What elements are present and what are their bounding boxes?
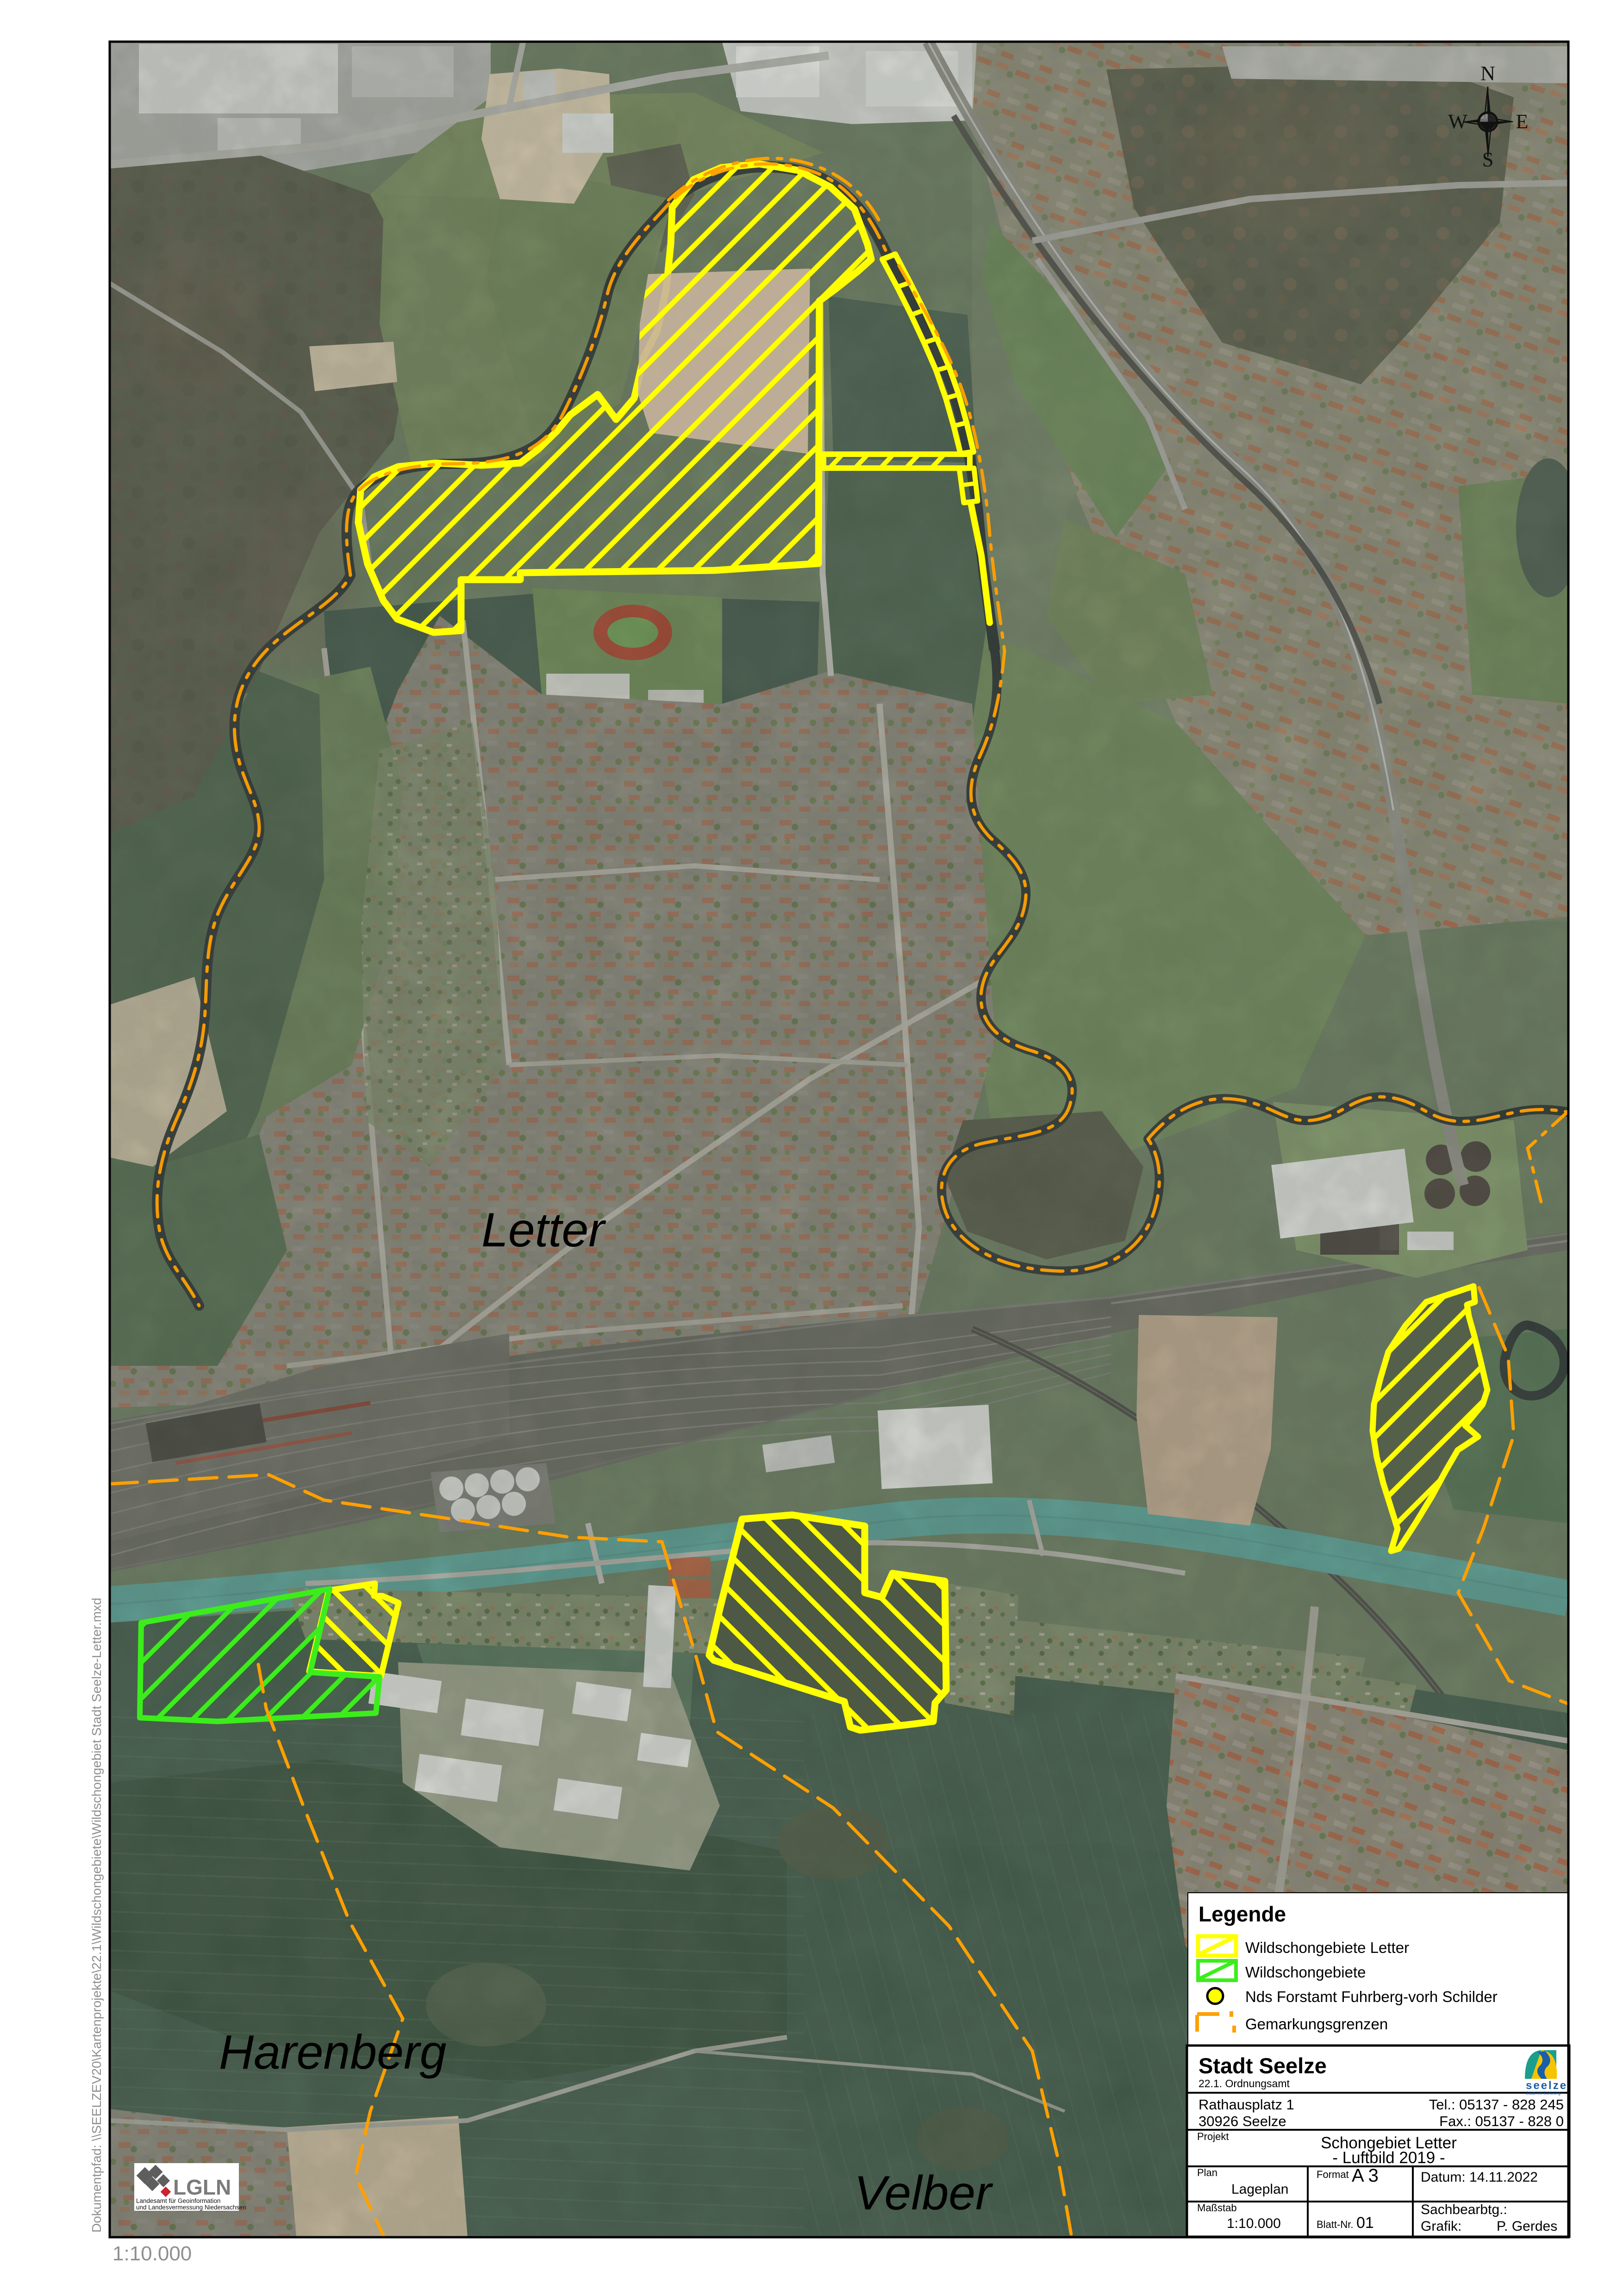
svg-text:Harenberg: Harenberg <box>219 2026 446 2079</box>
svg-text:Blatt-Nr.: Blatt-Nr. <box>1317 2219 1353 2230</box>
svg-text:Stadt Seelze: Stadt Seelze <box>1199 2053 1327 2078</box>
svg-text:Grafik:: Grafik: <box>1421 2219 1461 2234</box>
svg-text:E: E <box>1516 110 1529 133</box>
svg-text:1:10.000: 1:10.000 <box>112 2242 192 2265</box>
svg-text:Fax.: 05137 - 828 0: Fax.: 05137 - 828 0 <box>1439 2113 1564 2129</box>
svg-text:Wildschongebiete: Wildschongebiete <box>1245 1964 1366 1981</box>
svg-text:P. Gerdes: P. Gerdes <box>1497 2219 1557 2234</box>
svg-text:Lageplan: Lageplan <box>1231 2182 1288 2197</box>
svg-text:Dokumentpfad: \\SEELZEV20\Kart: Dokumentpfad: \\SEELZEV20\Kartenprojekte… <box>89 1598 104 2233</box>
svg-text:Tel.: 05137 - 828 245: Tel.: 05137 - 828 245 <box>1429 2096 1564 2113</box>
svg-text:30926 Seelze: 30926 Seelze <box>1199 2113 1286 2129</box>
svg-text:A 3: A 3 <box>1352 2165 1379 2186</box>
svg-text:Maßstab: Maßstab <box>1197 2202 1237 2214</box>
svg-text:22.1. Ordnungsamt: 22.1. Ordnungsamt <box>1199 2077 1290 2090</box>
svg-text:Format: Format <box>1317 2169 1349 2180</box>
svg-text:Stadt mit Schwung: Stadt mit Schwung <box>1526 2091 1561 2096</box>
svg-text:und Landesvermessung Niedersac: und Landesvermessung Niedersachsen <box>136 2204 246 2211</box>
svg-text:Plan: Plan <box>1197 2167 1217 2178</box>
svg-text:01: 01 <box>1356 2214 1374 2232</box>
svg-text:Sachbearbtg.:: Sachbearbtg.: <box>1421 2202 1507 2217</box>
svg-text:N: N <box>1480 62 1495 85</box>
svg-text:Wildschongebiete Letter: Wildschongebiete Letter <box>1245 1939 1409 1956</box>
svg-text:Landesamt für Geoinformation: Landesamt für Geoinformation <box>136 2197 220 2204</box>
svg-text:Gemarkungsgrenzen: Gemarkungsgrenzen <box>1245 2015 1388 2033</box>
svg-text:Velber: Velber <box>854 2166 993 2220</box>
svg-text:Projekt: Projekt <box>1197 2131 1229 2142</box>
svg-text:Legende: Legende <box>1199 1902 1286 1926</box>
svg-text:LGLN: LGLN <box>173 2175 231 2199</box>
svg-text:seelze: seelze <box>1526 2079 1567 2092</box>
svg-text:W: W <box>1448 110 1467 133</box>
svg-text:- Luftbild 2019 -: - Luftbild 2019 - <box>1332 2149 1445 2167</box>
svg-text:Letter: Letter <box>481 1203 606 1257</box>
svg-text:Datum: 14.11.2022: Datum: 14.11.2022 <box>1421 2170 1538 2185</box>
svg-text:S: S <box>1482 148 1493 171</box>
svg-text:Nds Forstamt Fuhrberg-vorh Sch: Nds Forstamt Fuhrberg-vorh Schilder <box>1245 1988 1498 2005</box>
svg-text:Rathausplatz 1: Rathausplatz 1 <box>1199 2096 1294 2113</box>
svg-text:1:10.000: 1:10.000 <box>1227 2216 1281 2231</box>
